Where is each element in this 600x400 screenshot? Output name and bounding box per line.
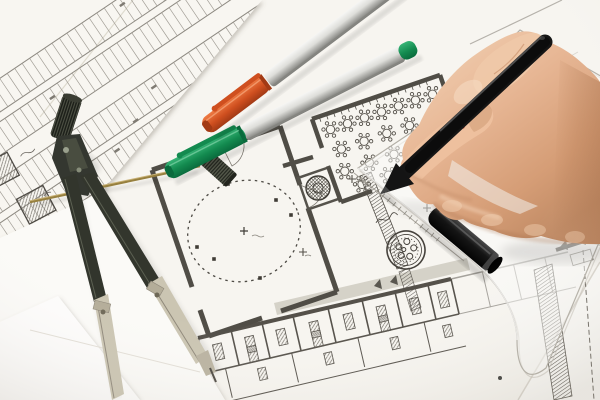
vignette-overlay [0,0,600,400]
photo-blueprints-scene [0,0,600,400]
scene-canvas [0,0,600,400]
